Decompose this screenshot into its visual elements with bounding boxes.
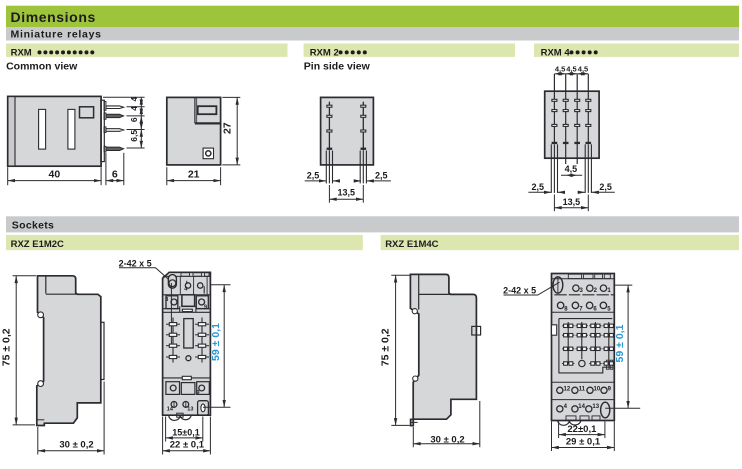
svg-text:Miniature relays: Miniature relays [11, 29, 102, 41]
svg-text:RXZ E1M2C: RXZ E1M2C [11, 239, 64, 250]
svg-text:2,5: 2,5 [531, 182, 544, 192]
svg-text:4,5: 4,5 [555, 64, 565, 73]
svg-text:Pin side view: Pin side view [304, 61, 371, 73]
svg-text:RXM 2: RXM 2 [310, 48, 339, 59]
svg-text:14: 14 [167, 406, 174, 412]
svg-text:9: 9 [197, 390, 200, 396]
svg-text:13: 13 [592, 404, 599, 410]
svg-text:2-42 x 5: 2-42 x 5 [119, 258, 152, 268]
svg-text:2-42 x 5: 2-42 x 5 [503, 286, 536, 296]
svg-text:4: 4 [129, 96, 139, 101]
svg-text:40: 40 [49, 168, 61, 180]
svg-text:10: 10 [594, 387, 601, 393]
svg-text:12: 12 [564, 387, 571, 393]
svg-text:30 ± 0,2: 30 ± 0,2 [59, 439, 93, 450]
svg-text:29 ± 0,1: 29 ± 0,1 [566, 437, 601, 448]
svg-text:RXM: RXM [11, 48, 32, 59]
svg-text:13: 13 [187, 406, 193, 412]
svg-text:13,5: 13,5 [563, 197, 581, 207]
svg-text:4: 4 [129, 106, 139, 111]
svg-text:11: 11 [579, 387, 586, 393]
svg-text:RXM 4: RXM 4 [541, 48, 571, 59]
svg-text:27: 27 [221, 122, 233, 134]
svg-text:4,5: 4,5 [578, 64, 588, 73]
svg-text:14: 14 [578, 404, 585, 410]
svg-text:6: 6 [112, 168, 118, 180]
svg-text:6: 6 [129, 117, 139, 122]
svg-text:75 ± 0,2: 75 ± 0,2 [0, 328, 12, 366]
svg-text:59 ± 0,1: 59 ± 0,1 [210, 323, 222, 361]
svg-text:Sockets: Sockets [12, 220, 54, 232]
svg-text:22±0,1: 22±0,1 [567, 424, 597, 435]
svg-text:22 ± 0,1: 22 ± 0,1 [170, 440, 205, 451]
svg-text:6,5: 6,5 [129, 130, 139, 142]
svg-text:4,5: 4,5 [565, 164, 578, 174]
svg-text:13,5: 13,5 [338, 188, 356, 198]
svg-text:75 ± 0,2: 75 ± 0,2 [380, 328, 392, 366]
svg-text:2,5: 2,5 [307, 171, 320, 181]
svg-text:9: 9 [204, 304, 207, 310]
svg-text:21: 21 [188, 168, 200, 180]
svg-text:2,5: 2,5 [599, 182, 612, 192]
svg-text:30 ± 0,2: 30 ± 0,2 [430, 434, 464, 445]
svg-text:59 ± 0,1: 59 ± 0,1 [614, 324, 626, 362]
svg-text:8: 8 [165, 297, 168, 303]
svg-text:RXZ E1M4C: RXZ E1M4C [385, 239, 438, 250]
svg-text:2,5: 2,5 [375, 171, 388, 181]
svg-text:Common view: Common view [6, 61, 78, 73]
svg-text:4,5: 4,5 [566, 64, 576, 73]
svg-text:15±0,1: 15±0,1 [172, 427, 199, 437]
svg-text:Dimensions: Dimensions [11, 9, 96, 25]
